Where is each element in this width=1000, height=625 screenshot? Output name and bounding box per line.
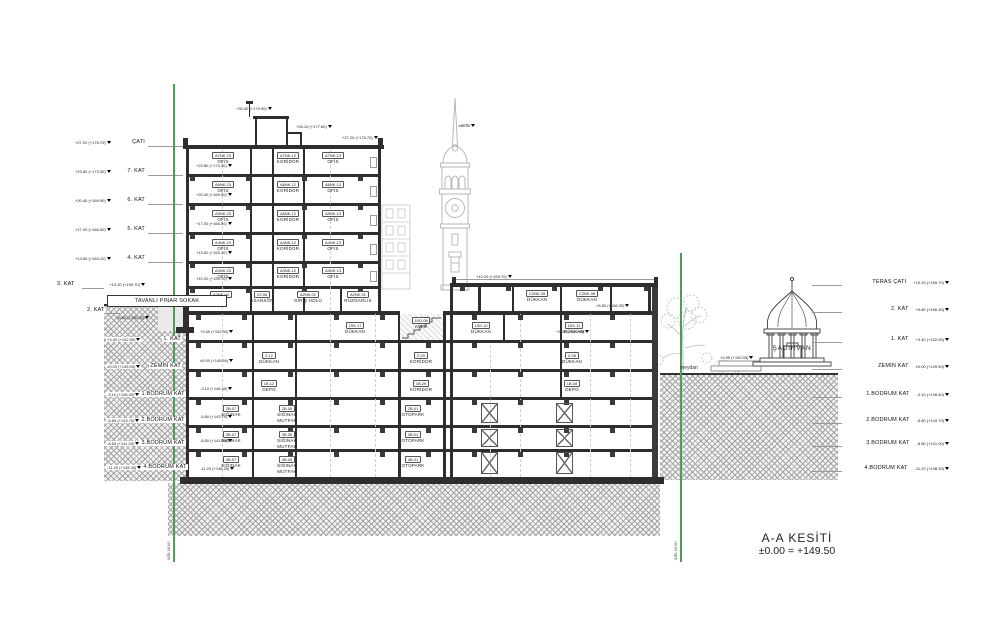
- beam-row: [460, 287, 652, 291]
- retaining-wall-footing: [176, 327, 194, 333]
- elevation-mark: +3.40 (+152.90): [200, 329, 233, 334]
- level-row: +23.80 (+173.30)7. KAT: [74, 168, 146, 174]
- leader-line: [812, 312, 842, 313]
- level-row: -8.50 (+141.00)3.BODRUM KAT: [106, 440, 182, 446]
- leader-line: [148, 146, 183, 147]
- level-row: +17.00 (+166.50)5. KAT: [74, 226, 146, 232]
- corridor-wall: [272, 148, 274, 311]
- bulkhead-roof: [253, 116, 289, 119]
- leader-line: [148, 262, 183, 263]
- room-label: 3B.01OTOPARK: [394, 431, 432, 444]
- level-row: 2.BODRUM KAT-5.80 (+143.70): [790, 417, 950, 423]
- leader-line: [148, 233, 183, 234]
- leader-line: [812, 446, 842, 447]
- bulkhead-wall: [255, 118, 257, 147]
- room-label: A6NK.12KORİDOR: [269, 181, 307, 194]
- elevation-mark: +17.00 (+166.50): [196, 221, 232, 226]
- level-row: 2. KAT: [86, 307, 116, 313]
- roof-slab: [183, 145, 384, 149]
- room-label: Z.08DÜKKAN: [553, 352, 591, 365]
- street-label: TAVANLI PINAR SOKAK: [107, 295, 227, 307]
- level-row: 2. KAT+6.80 (+156.30): [790, 306, 950, 312]
- room-label: 1SK.17DÜKKAN: [336, 322, 374, 335]
- leader-line: [812, 369, 842, 370]
- room-label: A5NK.12KORİDOR: [269, 210, 307, 223]
- boundary-label-right: ada sınırı: [673, 541, 678, 560]
- elevator-shaft: [481, 429, 498, 447]
- level-row: +13.60 (+163.10)4. KAT: [74, 255, 146, 261]
- room-label: C2NK.05DÜKKAN: [518, 290, 556, 303]
- elevation-mark: +30.40 (+179.90): [236, 106, 272, 111]
- room-label: A2NK.01RÜZGARLIK: [339, 291, 377, 304]
- level-row: +20.40 (+169.90)6. KAT: [74, 197, 146, 203]
- leader-line: [812, 285, 842, 286]
- room-label: A4NK.13OFİS: [314, 239, 352, 252]
- drawing-title: A-A KESİTİ: [722, 531, 872, 545]
- room-label: Z.29KORİDOR: [402, 352, 440, 365]
- leader-line: [148, 204, 183, 205]
- level-row: -11.20 (+138.30)4.BODRUM KAT: [106, 464, 182, 470]
- room-label: A3NK.12KORİDOR: [269, 267, 307, 280]
- elevation-mark: -11.20 (+138.30): [200, 466, 234, 471]
- beam-row: [196, 372, 648, 377]
- room-label: 2B.06SIĞINAK MUTFAK: [268, 405, 306, 423]
- level-row: +27.20 (+176.70)ÇATI: [74, 139, 146, 145]
- room-label: A6NK.13OFİS: [314, 181, 352, 194]
- room-label: A2NK.02GİRİŞ HOLÜ: [289, 291, 327, 304]
- square-label: meydan: [680, 365, 698, 371]
- parcel-boundary-line-right: [680, 253, 682, 562]
- leader-line: [82, 288, 104, 289]
- elevation-mark: -3.10 (+146.40): [200, 386, 232, 391]
- boundary-label-left: ada sınırı: [166, 541, 171, 560]
- elevator-shaft: [481, 452, 498, 474]
- room-label: 4B.01OTOPARK: [394, 456, 432, 469]
- tower-wall-left: [186, 145, 189, 311]
- room-label: 4B.06SIĞINAK MUTFAK: [268, 456, 306, 474]
- level-row: 3.BODRUM KAT-8.50 (+141.00): [790, 440, 950, 446]
- level-row: +3.40 (+152.90)1. KAT: [106, 336, 182, 342]
- level-row: TERAS ÇATI+10.20 (+159.70): [790, 279, 950, 285]
- room-label: 1B.12DEPO: [250, 380, 288, 393]
- leader-line: [812, 423, 842, 424]
- leader-line: [812, 471, 842, 472]
- parapet: [654, 277, 658, 284]
- room-label: A3NK.13OFİS: [314, 267, 352, 280]
- room-label: 3B.06SIĞINAK MUTFAK: [268, 431, 306, 449]
- column-centerline: [330, 150, 331, 310]
- elevation-mark: +27.20 (+176.70): [342, 135, 378, 140]
- beam-row: [196, 343, 648, 348]
- corridor-wall: [303, 148, 305, 311]
- podium-wall-right: [652, 283, 658, 477]
- drawing-datum: ±0.00 = +149.50: [722, 545, 872, 557]
- window: [370, 215, 377, 226]
- elevation-mark: +6.80 (+156.30): [596, 303, 629, 308]
- elevation-mark: ±0.00 (+149.50): [200, 358, 233, 363]
- elevation-mark: +0.55 (+150.05): [720, 355, 753, 360]
- level-row: -3.10 (+146.40)1.BODRUM KAT: [106, 391, 182, 397]
- elevation-mark: +6.80 (+156.30): [116, 315, 149, 320]
- section-drawing: ŞADIRVAN ada sınırı ada sınırı: [0, 0, 1000, 625]
- leader-line: [812, 397, 842, 398]
- room-label: A7NK.13OFİS: [314, 152, 352, 165]
- fountain-label: ŞADIRVAN: [757, 345, 827, 352]
- window: [370, 186, 377, 197]
- clock-tower-illustration: [425, 95, 485, 291]
- level-row: 1. KAT+3.40 (+152.90): [790, 336, 950, 342]
- terrace-roof-edge: [452, 279, 658, 280]
- elevator-shaft: [556, 403, 573, 423]
- tower-wall-right: [378, 145, 381, 312]
- elevation-mark: -8.50 (+141.00): [200, 438, 232, 443]
- level-row: -5.80 (+143.70)2.BODRUM KAT: [106, 417, 182, 423]
- elevation-mark: +23.80 (+173.30): [196, 163, 232, 168]
- window: [370, 244, 377, 255]
- elevator-shaft: [556, 429, 573, 447]
- shaft-wall: [250, 148, 252, 311]
- leader-line: [812, 342, 842, 343]
- room-label: C2NK.06DÜKKAN: [568, 290, 606, 303]
- level-row: ±0.00 (+149.50)ZEMİN KAT: [106, 363, 182, 369]
- elevation-mark: +3.40 (+152.90): [556, 329, 589, 334]
- room-label: Z.12DÜKKAN: [250, 352, 288, 365]
- room-label: X3.06ASANSÖR: [243, 291, 281, 304]
- leader-line: [148, 175, 183, 176]
- window: [370, 271, 377, 282]
- ground-hatch-meydan: [660, 373, 838, 480]
- window: [370, 157, 377, 168]
- ground-hatch-foundation: [168, 483, 660, 536]
- level-row: 3. KAT+10.20 (+159.70): [56, 281, 146, 287]
- elevation-mark: +20.40 (+169.90): [196, 192, 232, 197]
- parapet: [452, 277, 456, 284]
- elevation-mark: +10.20 (+159.70): [476, 274, 512, 279]
- elevation-mark: +10.20 (+159.70): [196, 276, 232, 281]
- room-label: A4NK.12KORİDOR: [269, 239, 307, 252]
- column-centerline: [222, 150, 223, 310]
- bulkhead-step-wall: [300, 132, 302, 147]
- elevation-mark: +28.10 (+177.60): [296, 124, 332, 129]
- level-row: 4.BODRUM KAT-11.20 (+138.30): [790, 465, 950, 471]
- foundation-slab: [180, 477, 664, 484]
- room-label: A5NK.13OFİS: [314, 210, 352, 223]
- leader-line: [104, 313, 120, 314]
- room-label: A7NK.12KORİDOR: [269, 152, 307, 165]
- rightblock-wall-left: [450, 283, 453, 477]
- elevator-shaft: [481, 403, 498, 423]
- elevator-shaft: [556, 452, 573, 474]
- elevation-mark: +13.60 (+163.10): [196, 250, 232, 255]
- room-label: 1B.29KORİDOR: [402, 380, 440, 393]
- level-row: ZEMİN KAT±0.00 (+149.50): [790, 363, 950, 369]
- background-building-facade: [381, 204, 411, 290]
- elevation-mark: +45.50: [458, 123, 475, 128]
- parcel-boundary-line-left: [173, 84, 175, 562]
- elevation-mark: -5.80 (+143.70): [200, 414, 232, 419]
- antenna-cap: [246, 101, 253, 104]
- room-label: 1B.08DEPO: [553, 380, 591, 393]
- podium-wall-left: [186, 311, 189, 479]
- room-label: 1SO.06AVLU: [402, 317, 440, 330]
- room-label: 2B.01OTOPARK: [394, 405, 432, 418]
- level-row: 1.BODRUM KAT-3.10 (+146.40): [790, 391, 950, 397]
- room-label: 1SK.10DÜKKAN: [462, 322, 500, 335]
